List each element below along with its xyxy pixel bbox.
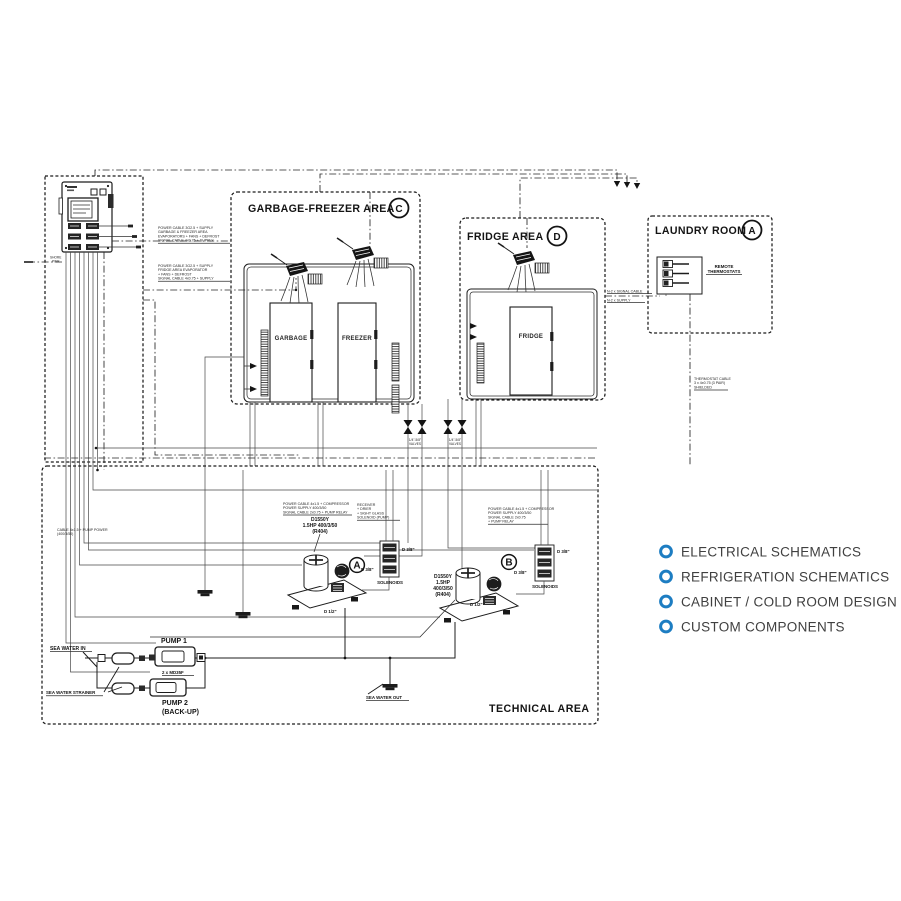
svg-text:N-2 x SIGNAL CABLE: N-2 x SIGNAL CABLE — [607, 290, 643, 294]
svg-text:SIGNAL CABLE 2x0.75 + PUMP REL: SIGNAL CABLE 2x0.75 + PUMP RELAY — [283, 510, 348, 514]
garbage-evaporator — [271, 254, 322, 303]
fridge-cabinet: FRIDGE — [510, 307, 553, 395]
laundry-room-area: LAUNDRY ROOM A REMOTE THERMOSTATS — [648, 216, 772, 333]
menu-label: CUSTOM COMPONENTS — [681, 620, 845, 635]
pump-2 — [150, 679, 186, 696]
pump2-label: PUMP 2 — [162, 700, 188, 707]
sea-water-in-label: SEA WATER IN — [50, 646, 86, 652]
svg-text:D 1/2": D 1/2" — [324, 609, 337, 614]
sea-water-strainer-1 — [112, 653, 134, 664]
control-panel — [59, 182, 141, 252]
tag-letter-a: A — [748, 226, 755, 237]
menu-item-custom-components[interactable]: CUSTOM COMPONENTS — [661, 620, 845, 635]
svg-text:N-2 x SUPPLY: N-2 x SUPPLY — [607, 299, 631, 303]
fridge-area-title: FRIDGE AREA — [467, 231, 543, 243]
technical-area: TECHNICAL AREA POWER CABLE 4x1.5 + COMPR… — [42, 466, 598, 724]
arrow-down-icon — [624, 182, 630, 188]
freezer-evaporator — [337, 238, 388, 287]
tag-letter-c: C — [395, 204, 402, 215]
bullet-ring-icon — [661, 571, 672, 582]
fridge-evaporator — [498, 243, 549, 292]
services-menu: ELECTRICAL SCHEMATICS REFRIGERATION SCHE… — [661, 545, 897, 635]
bullet-ring-icon — [661, 596, 672, 607]
pump1-model: 2 x MD35F — [162, 670, 184, 675]
bullet-ring-icon — [661, 621, 672, 632]
valve-label: VALVES — [449, 442, 461, 446]
sea-water-strainer-label: SEA WATER STRAINER — [46, 690, 96, 695]
garbage-freezer-area-title: GARBAGE-FREEZER AREA — [248, 203, 395, 215]
tag-letter-compressor-a: A — [353, 561, 360, 572]
valve-label: VALVES — [409, 442, 421, 446]
menu-label: CABINET / COLD ROOM DESIGN — [681, 595, 897, 610]
bullet-ring-icon — [661, 546, 672, 557]
menu-label: REFRIGERATION SCHEMATICS — [681, 570, 889, 585]
solenoid-stack-b: D 3/8" D 3/8" SOLENOIDS — [514, 470, 570, 594]
svg-text:D 3/8": D 3/8" — [557, 549, 570, 554]
tag-letter-compressor-b: B — [505, 558, 512, 569]
svg-text:SOLENOID (PUMP): SOLENOID (PUMP) — [357, 516, 389, 520]
cable-spec-compressor-b: POWER CABLE 4x1.5 + COMPRESSOR POWER SUP… — [488, 507, 555, 524]
svg-text:(R404): (R404) — [435, 592, 451, 598]
arrow-down-icon — [614, 181, 620, 187]
svg-text:D 3/8": D 3/8" — [514, 570, 527, 575]
solenoid-stack-a: D 3/8" D 3/8" SOLENOIDS — [361, 470, 415, 590]
svg-text:SIGNAL CABLE 4x0.75 + SUPPLY: SIGNAL CABLE 4x0.75 + SUPPLY — [158, 239, 214, 243]
arrow-down-icon — [634, 183, 640, 189]
svg-text:+ PUMP RELAY: + PUMP RELAY — [488, 520, 515, 524]
menu-item-cabinet-cold-room-design[interactable]: CABINET / COLD ROOM DESIGN — [661, 595, 897, 610]
sea-water-circuit: SEA WATER IN PUMP 1 2 x MD35F PUMP 2 (BA… — [46, 608, 455, 716]
garbage-freezer-area: GARBAGE-FREEZER AREA C GARBAGE FREEZER — [231, 192, 420, 413]
cable-spec-panel-top: POWER CABLE 3G2.5 + SUPPLY GARBAGE & FRE… — [158, 226, 230, 243]
svg-text:(400/3/50): (400/3/50) — [57, 532, 73, 536]
svg-text:D 1/2": D 1/2" — [470, 602, 483, 607]
cable-spec-compressor-a: POWER CABLE 4x1.5 + COMPRESSOR POWER SUP… — [283, 502, 352, 515]
garbage-cabinet-label: GARBAGE — [275, 336, 308, 342]
cable-spec-pump-power: CABLE 4x1.5 + PUMP POWER (400/3/50) — [57, 528, 108, 536]
drain-flange — [198, 590, 213, 596]
compressor-a: A D1550Y 1.5HP 400/3/50 (R404) D 1/2" — [288, 517, 366, 614]
menu-item-refrigeration-schematics[interactable]: REFRIGERATION SCHEMATICS — [661, 570, 890, 585]
freezer-cabinet: FREEZER — [338, 303, 377, 402]
svg-text:SOLENOIDS: SOLENOIDS — [377, 580, 403, 585]
refrigeration-schematic: SHORE PWR POWER CABLE 3G2.5 + SUPPLY GAR… — [0, 0, 901, 901]
svg-text:D 3/8": D 3/8" — [361, 567, 374, 572]
laundry-thermostat-drop: THERMOSTAT CABLE 3 x 4x0.75 (3 PAIR) SHI… — [690, 294, 732, 466]
freezer-cabinet-label: FREEZER — [342, 336, 372, 342]
fridge-area: FRIDGE AREA D FRIDGE — [460, 218, 605, 400]
pump1-label: PUMP 1 — [161, 638, 187, 645]
svg-text:D 3/8": D 3/8" — [402, 547, 415, 552]
remote-thermostat-panel — [657, 257, 702, 294]
svg-text:SHIELDED: SHIELDED — [694, 385, 712, 389]
laundry-room-title: LAUNDRY ROOM — [655, 225, 746, 237]
sea-water-out-label: SEA WATER OUT — [366, 695, 402, 700]
garbage-cabinet: GARBAGE — [270, 303, 313, 402]
wire-bundle — [66, 241, 597, 672]
sea-water-strainer-2 — [112, 683, 134, 694]
shore-label-2: PWR — [52, 259, 60, 263]
svg-text:SOLENOIDS: SOLENOIDS — [532, 584, 558, 589]
menu-label: ELECTRICAL SCHEMATICS — [681, 545, 861, 560]
receiver-note: RECEIVER + DRIER + SIGHT GLASS SOLENOID … — [357, 503, 400, 520]
tag-letter-d: D — [553, 232, 560, 243]
sea-water-out-flange — [383, 684, 398, 690]
schematic-page: SHORE PWR POWER CABLE 3G2.5 + SUPPLY GAR… — [0, 0, 901, 901]
control-panel-area: SHORE PWR — [24, 176, 143, 462]
menu-item-electrical-schematics[interactable]: ELECTRICAL SCHEMATICS — [661, 545, 862, 560]
shore-power: SHORE PWR — [24, 256, 62, 264]
technical-area-title: TECHNICAL AREA — [489, 703, 590, 715]
pump2-sub: (BACK-UP) — [162, 709, 199, 716]
fridge-cabinet-label: FRIDGE — [519, 334, 543, 340]
pump-1 — [149, 647, 205, 666]
remote-thermostats-label-2: THERMOSTATS — [708, 269, 741, 274]
cable-spec-panel-bottom: POWER CABLE 3G2.5 + SUPPLY FRIDGE AREA E… — [158, 264, 230, 281]
svg-text:SIGNAL CABLE 4x0.75 + SUPPLY: SIGNAL CABLE 4x0.75 + SUPPLY — [158, 277, 214, 281]
